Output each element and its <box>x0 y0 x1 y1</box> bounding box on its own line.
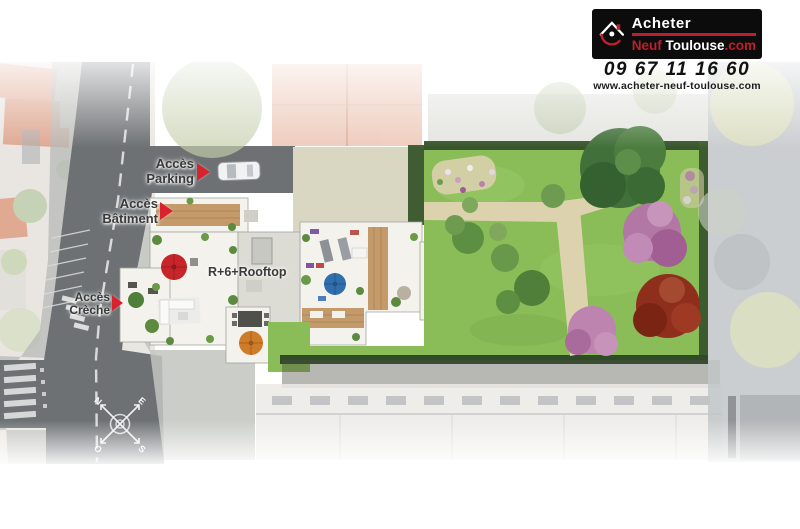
house-logo-icon <box>598 14 626 54</box>
red-umbrella <box>161 254 187 280</box>
access-creche-label: Accès Crèche <box>66 291 110 318</box>
orange-umbrella <box>239 331 263 355</box>
car <box>218 161 261 180</box>
logo-word-acheter: Acheter <box>632 15 756 32</box>
blue-umbrella <box>324 273 346 295</box>
tree <box>1 249 27 275</box>
access-parking-line2: Parking <box>128 172 194 187</box>
access-batiment-label: Accès Bâtiment <box>94 197 158 226</box>
access-parking-marker-icon <box>197 163 210 181</box>
agency-logo: Acheter Neuf Toulouse.com <box>592 9 762 59</box>
logo-wordmark: Acheter Neuf Toulouse.com <box>632 15 756 53</box>
website-url: www.acheter-neuf-toulouse.com <box>586 80 768 92</box>
logo-word-line2: Neuf Toulouse.com <box>632 38 756 53</box>
logo-word-neuf: Neuf <box>632 38 662 53</box>
access-batiment-marker-icon <box>160 202 173 220</box>
paver <box>244 210 258 222</box>
access-batiment-line2: Bâtiment <box>94 212 158 227</box>
access-creche-marker-icon <box>112 295 123 311</box>
hedge <box>408 145 424 225</box>
rooftop-floors-label: R+6+Rooftop <box>208 265 286 279</box>
paver <box>246 280 262 292</box>
logo-word-toulouse: Toulouse <box>665 38 724 53</box>
logo-suffix-com: .com <box>724 38 756 53</box>
logo-red-bar <box>632 33 756 36</box>
phone-number: 09 67 11 16 60 <box>590 59 764 81</box>
compass-rose-icon: N E S O <box>90 394 150 454</box>
stair-core <box>252 238 272 264</box>
access-parking-label: Accès Parking <box>128 157 194 186</box>
compass-west: O <box>92 443 104 454</box>
access-parking-line1: Accès <box>128 157 194 172</box>
site-plan-image: Accès Parking Accès Bâtiment Accès Crèch… <box>0 0 800 529</box>
compass-south: S <box>136 443 147 454</box>
tree <box>13 189 47 223</box>
access-creche-line2: Crèche <box>66 304 110 317</box>
access-batiment-line1: Accès <box>94 197 158 212</box>
